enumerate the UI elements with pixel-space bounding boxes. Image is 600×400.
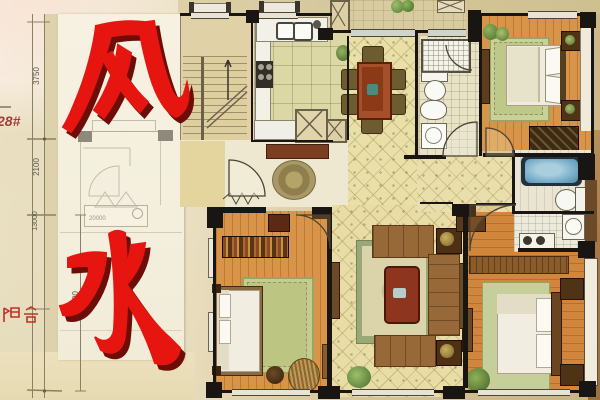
- svg-text:28#: 28#: [0, 113, 21, 129]
- svg-text:13000: 13000: [32, 211, 39, 231]
- svg-text:3750: 3750: [32, 67, 41, 85]
- svg-text:2100: 2100: [32, 158, 41, 176]
